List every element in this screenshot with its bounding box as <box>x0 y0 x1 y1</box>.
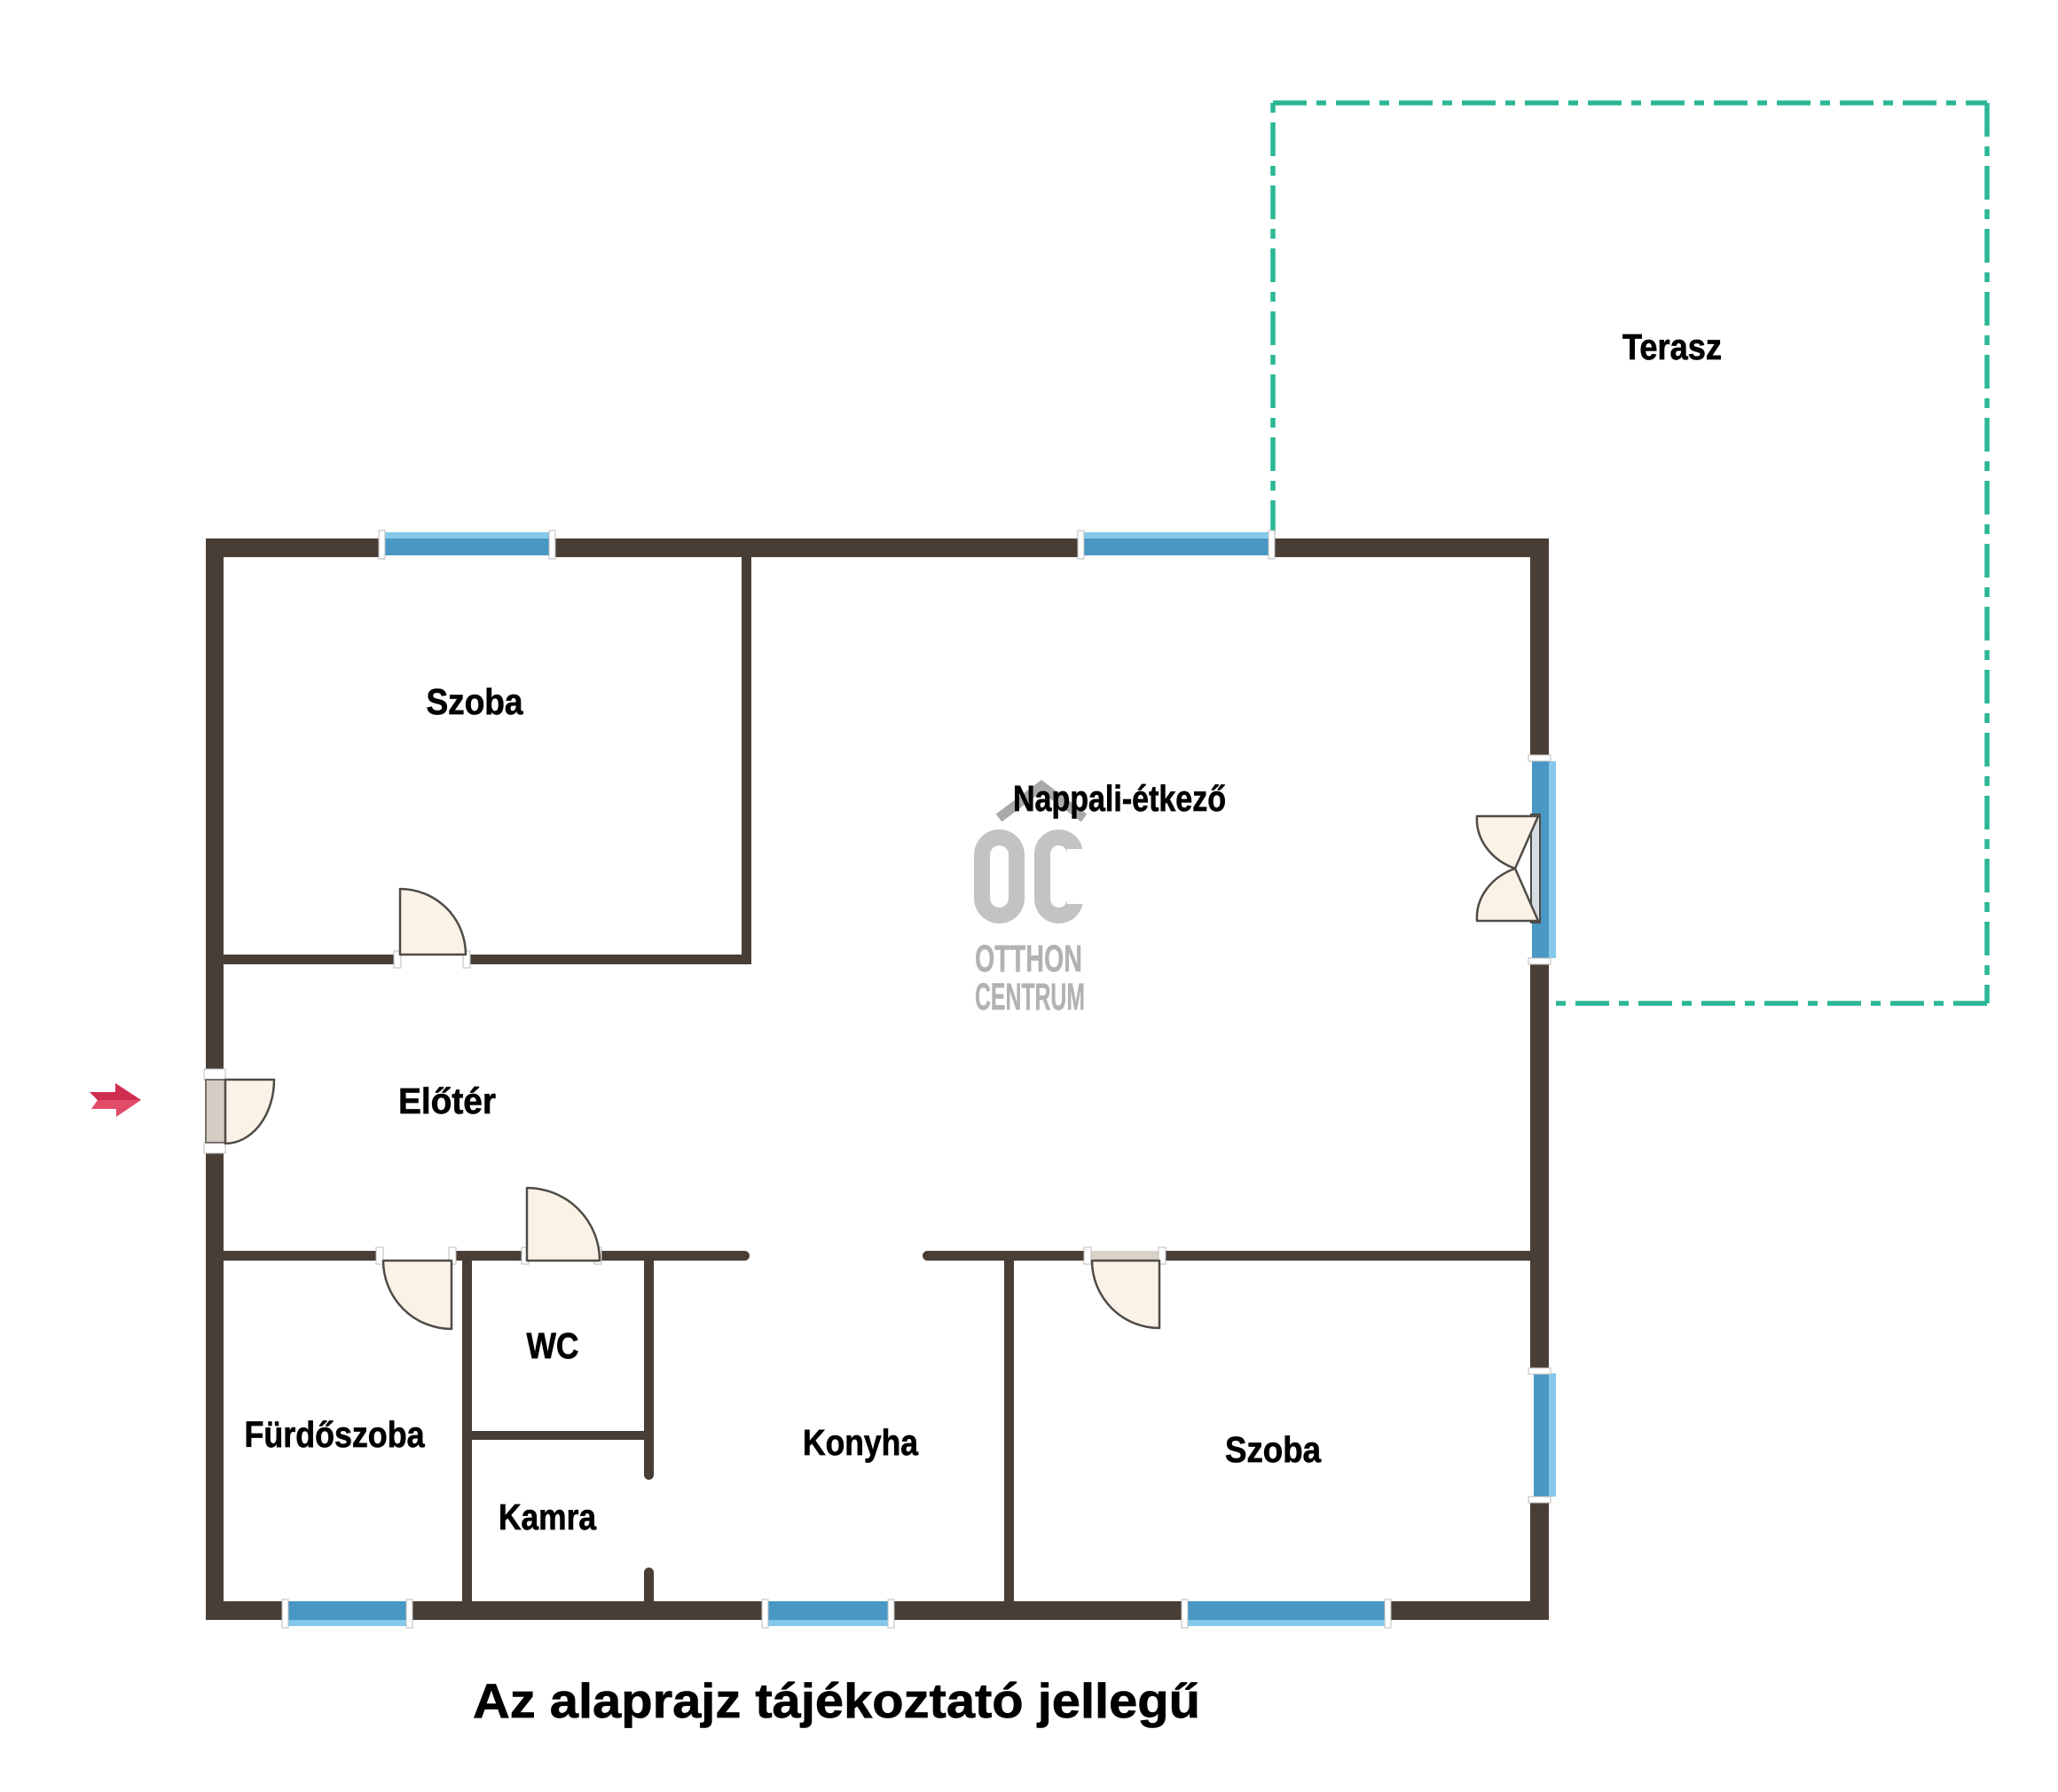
svg-text:CENTRUM: CENTRUM <box>975 976 1085 1018</box>
svg-text:Terasz: Terasz <box>1622 326 1722 367</box>
svg-text:Fürdőszoba: Fürdőszoba <box>245 1414 426 1455</box>
svg-text:OTTHON: OTTHON <box>975 938 1082 980</box>
svg-text:Szoba: Szoba <box>1225 1429 1322 1470</box>
svg-text:Konyha: Konyha <box>803 1422 919 1463</box>
svg-text:Az alaprajz tájékoztató jelleg: Az alaprajz tájékoztató jellegű <box>473 1673 1200 1728</box>
svg-text:Nappali-étkező: Nappali-étkező <box>1013 778 1226 819</box>
svg-text:Kamra: Kamra <box>499 1497 597 1537</box>
svg-text:Előtér: Előtér <box>398 1081 496 1121</box>
svg-text:Szoba: Szoba <box>427 681 524 722</box>
svg-text:WC: WC <box>527 1325 579 1366</box>
